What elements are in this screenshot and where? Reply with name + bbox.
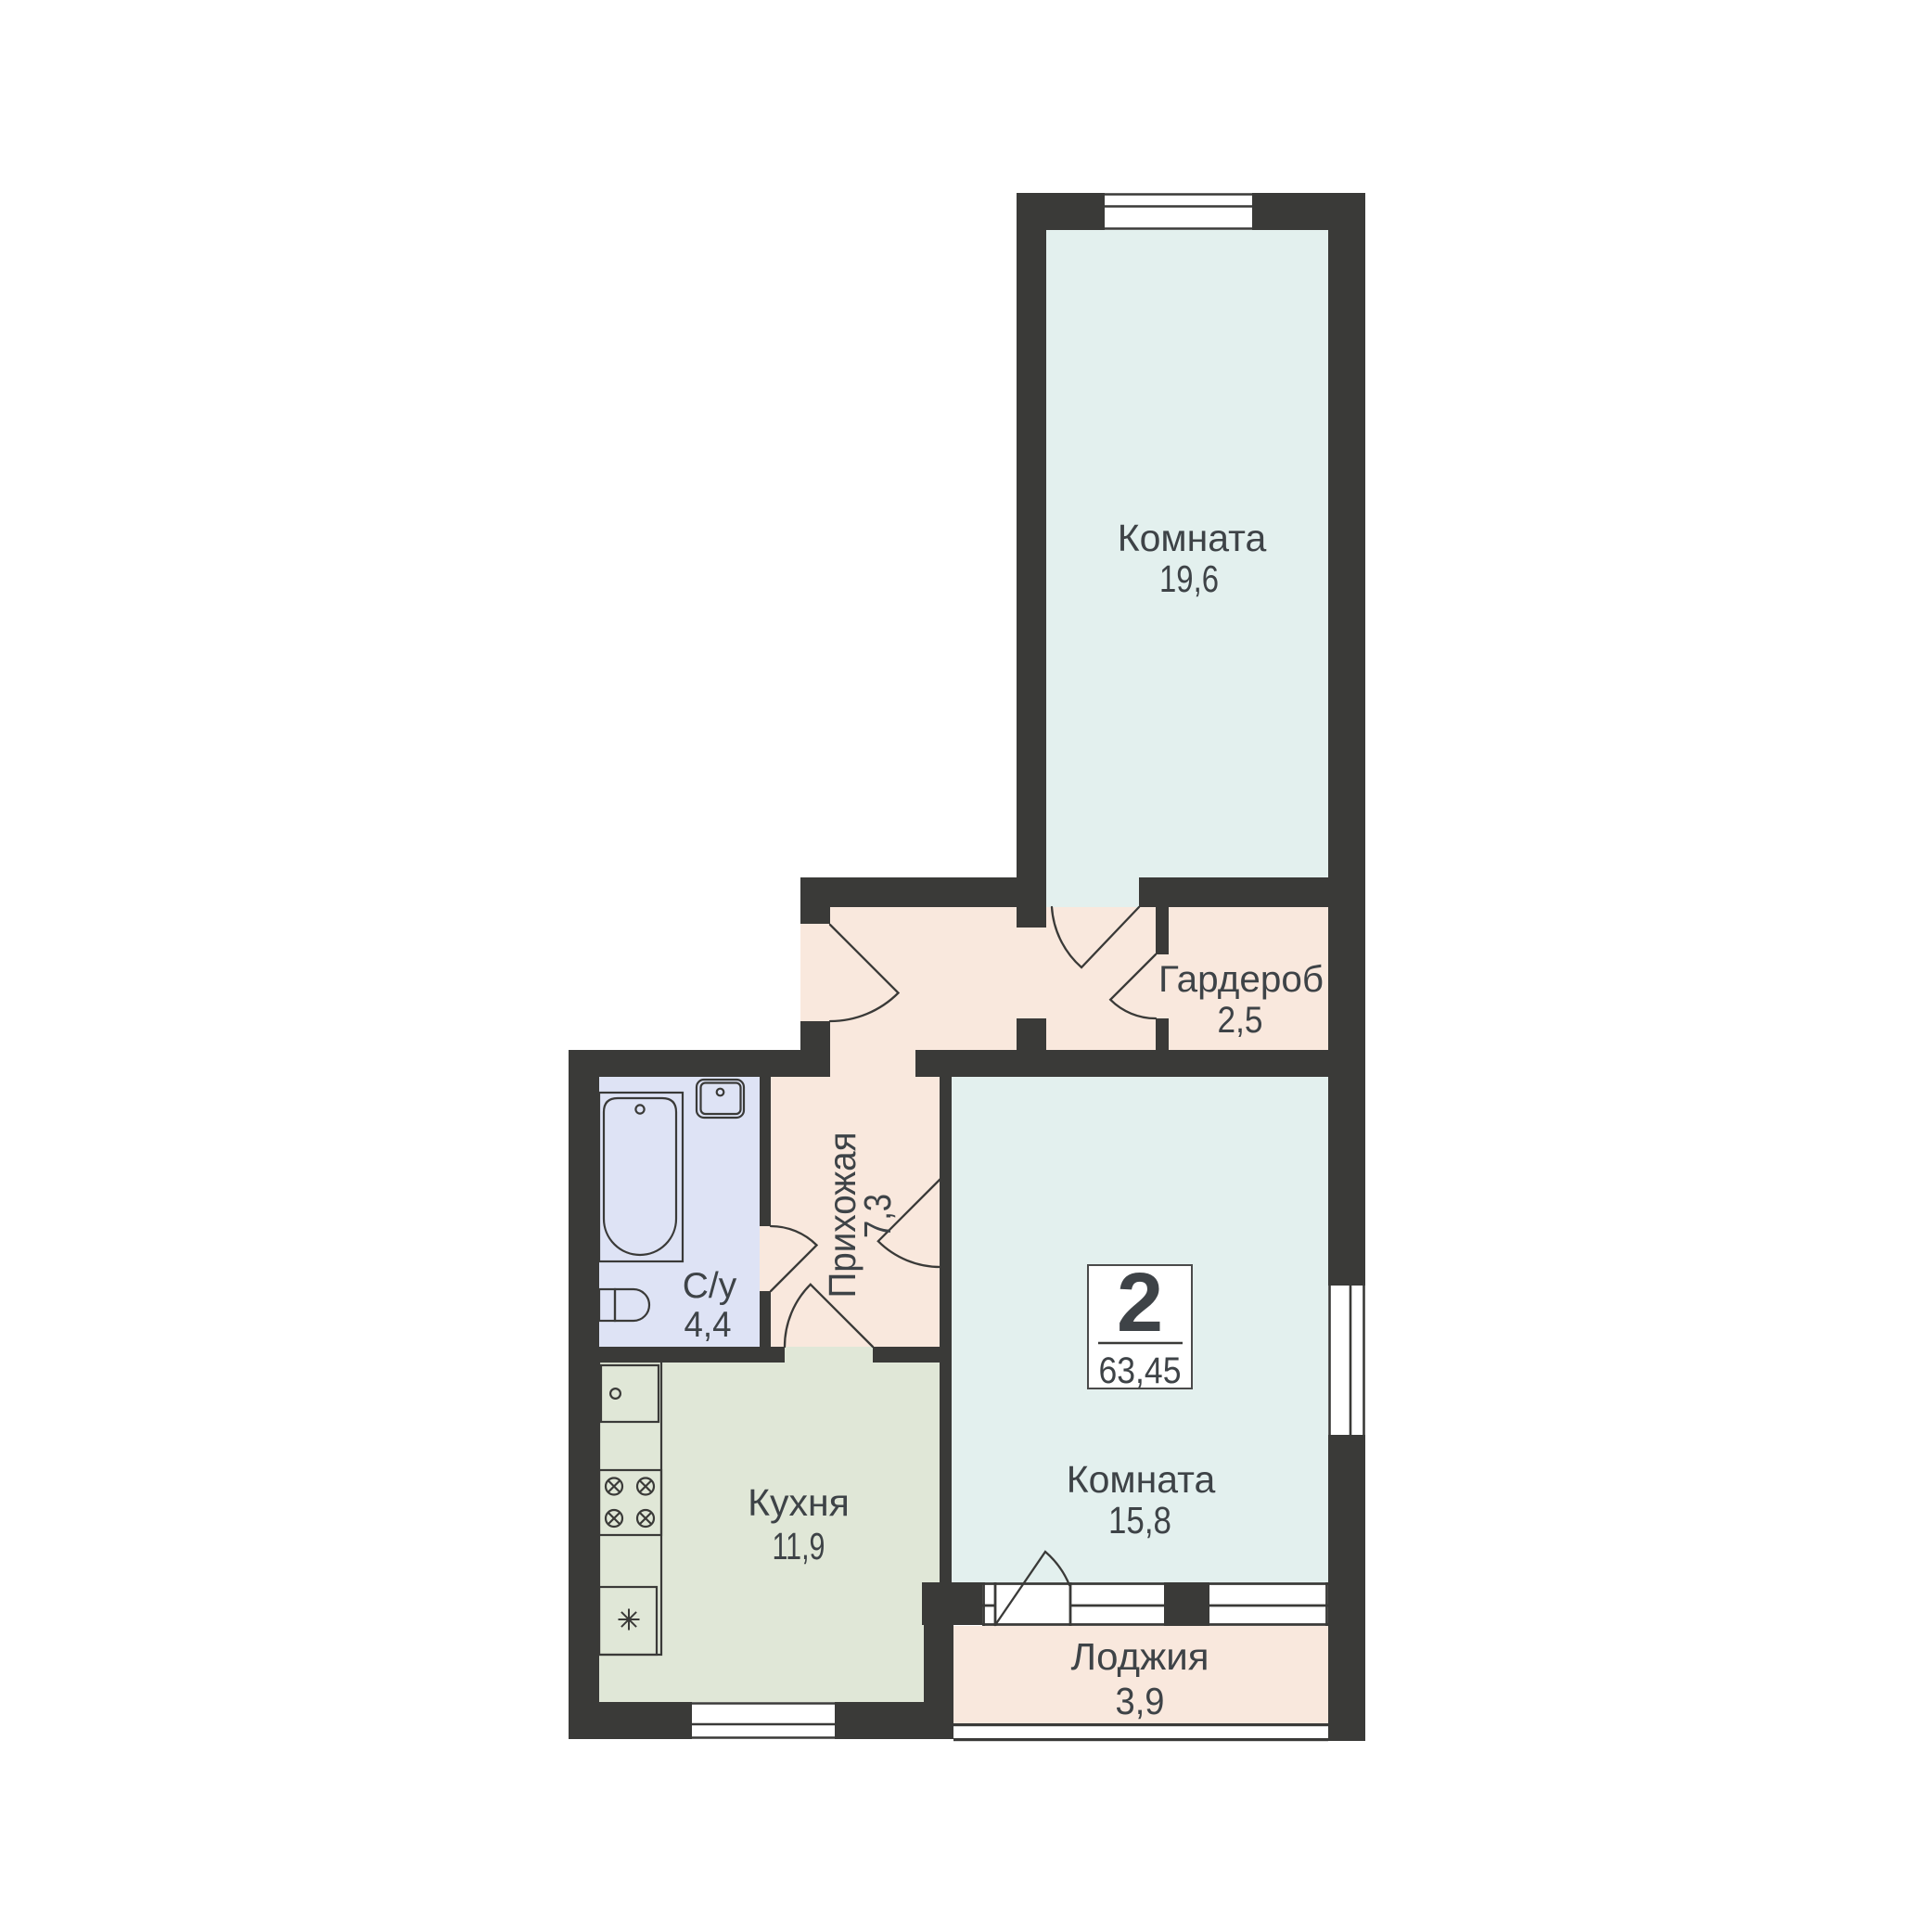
svg-text:4,4: 4,4 xyxy=(685,1305,732,1345)
svg-text:Гардероб: Гардероб xyxy=(1158,959,1324,1000)
svg-text:Кухня: Кухня xyxy=(748,1481,850,1524)
svg-text:Комната: Комната xyxy=(1067,1458,1216,1501)
svg-text:С/у: С/у xyxy=(683,1266,737,1306)
svg-text:2: 2 xyxy=(1117,1257,1163,1350)
svg-text:63,45: 63,45 xyxy=(1099,1350,1182,1391)
svg-text:11,9: 11,9 xyxy=(773,1525,825,1567)
svg-text:Комната: Комната xyxy=(1118,517,1267,559)
svg-text:3,9: 3,9 xyxy=(1116,1680,1165,1722)
svg-text:19,6: 19,6 xyxy=(1159,557,1219,600)
svg-text:Лоджия: Лоджия xyxy=(1071,1635,1209,1678)
svg-text:15,8: 15,8 xyxy=(1108,1499,1171,1542)
svg-text:2,5: 2,5 xyxy=(1218,1000,1263,1041)
svg-text:7,3: 7,3 xyxy=(856,1194,899,1238)
